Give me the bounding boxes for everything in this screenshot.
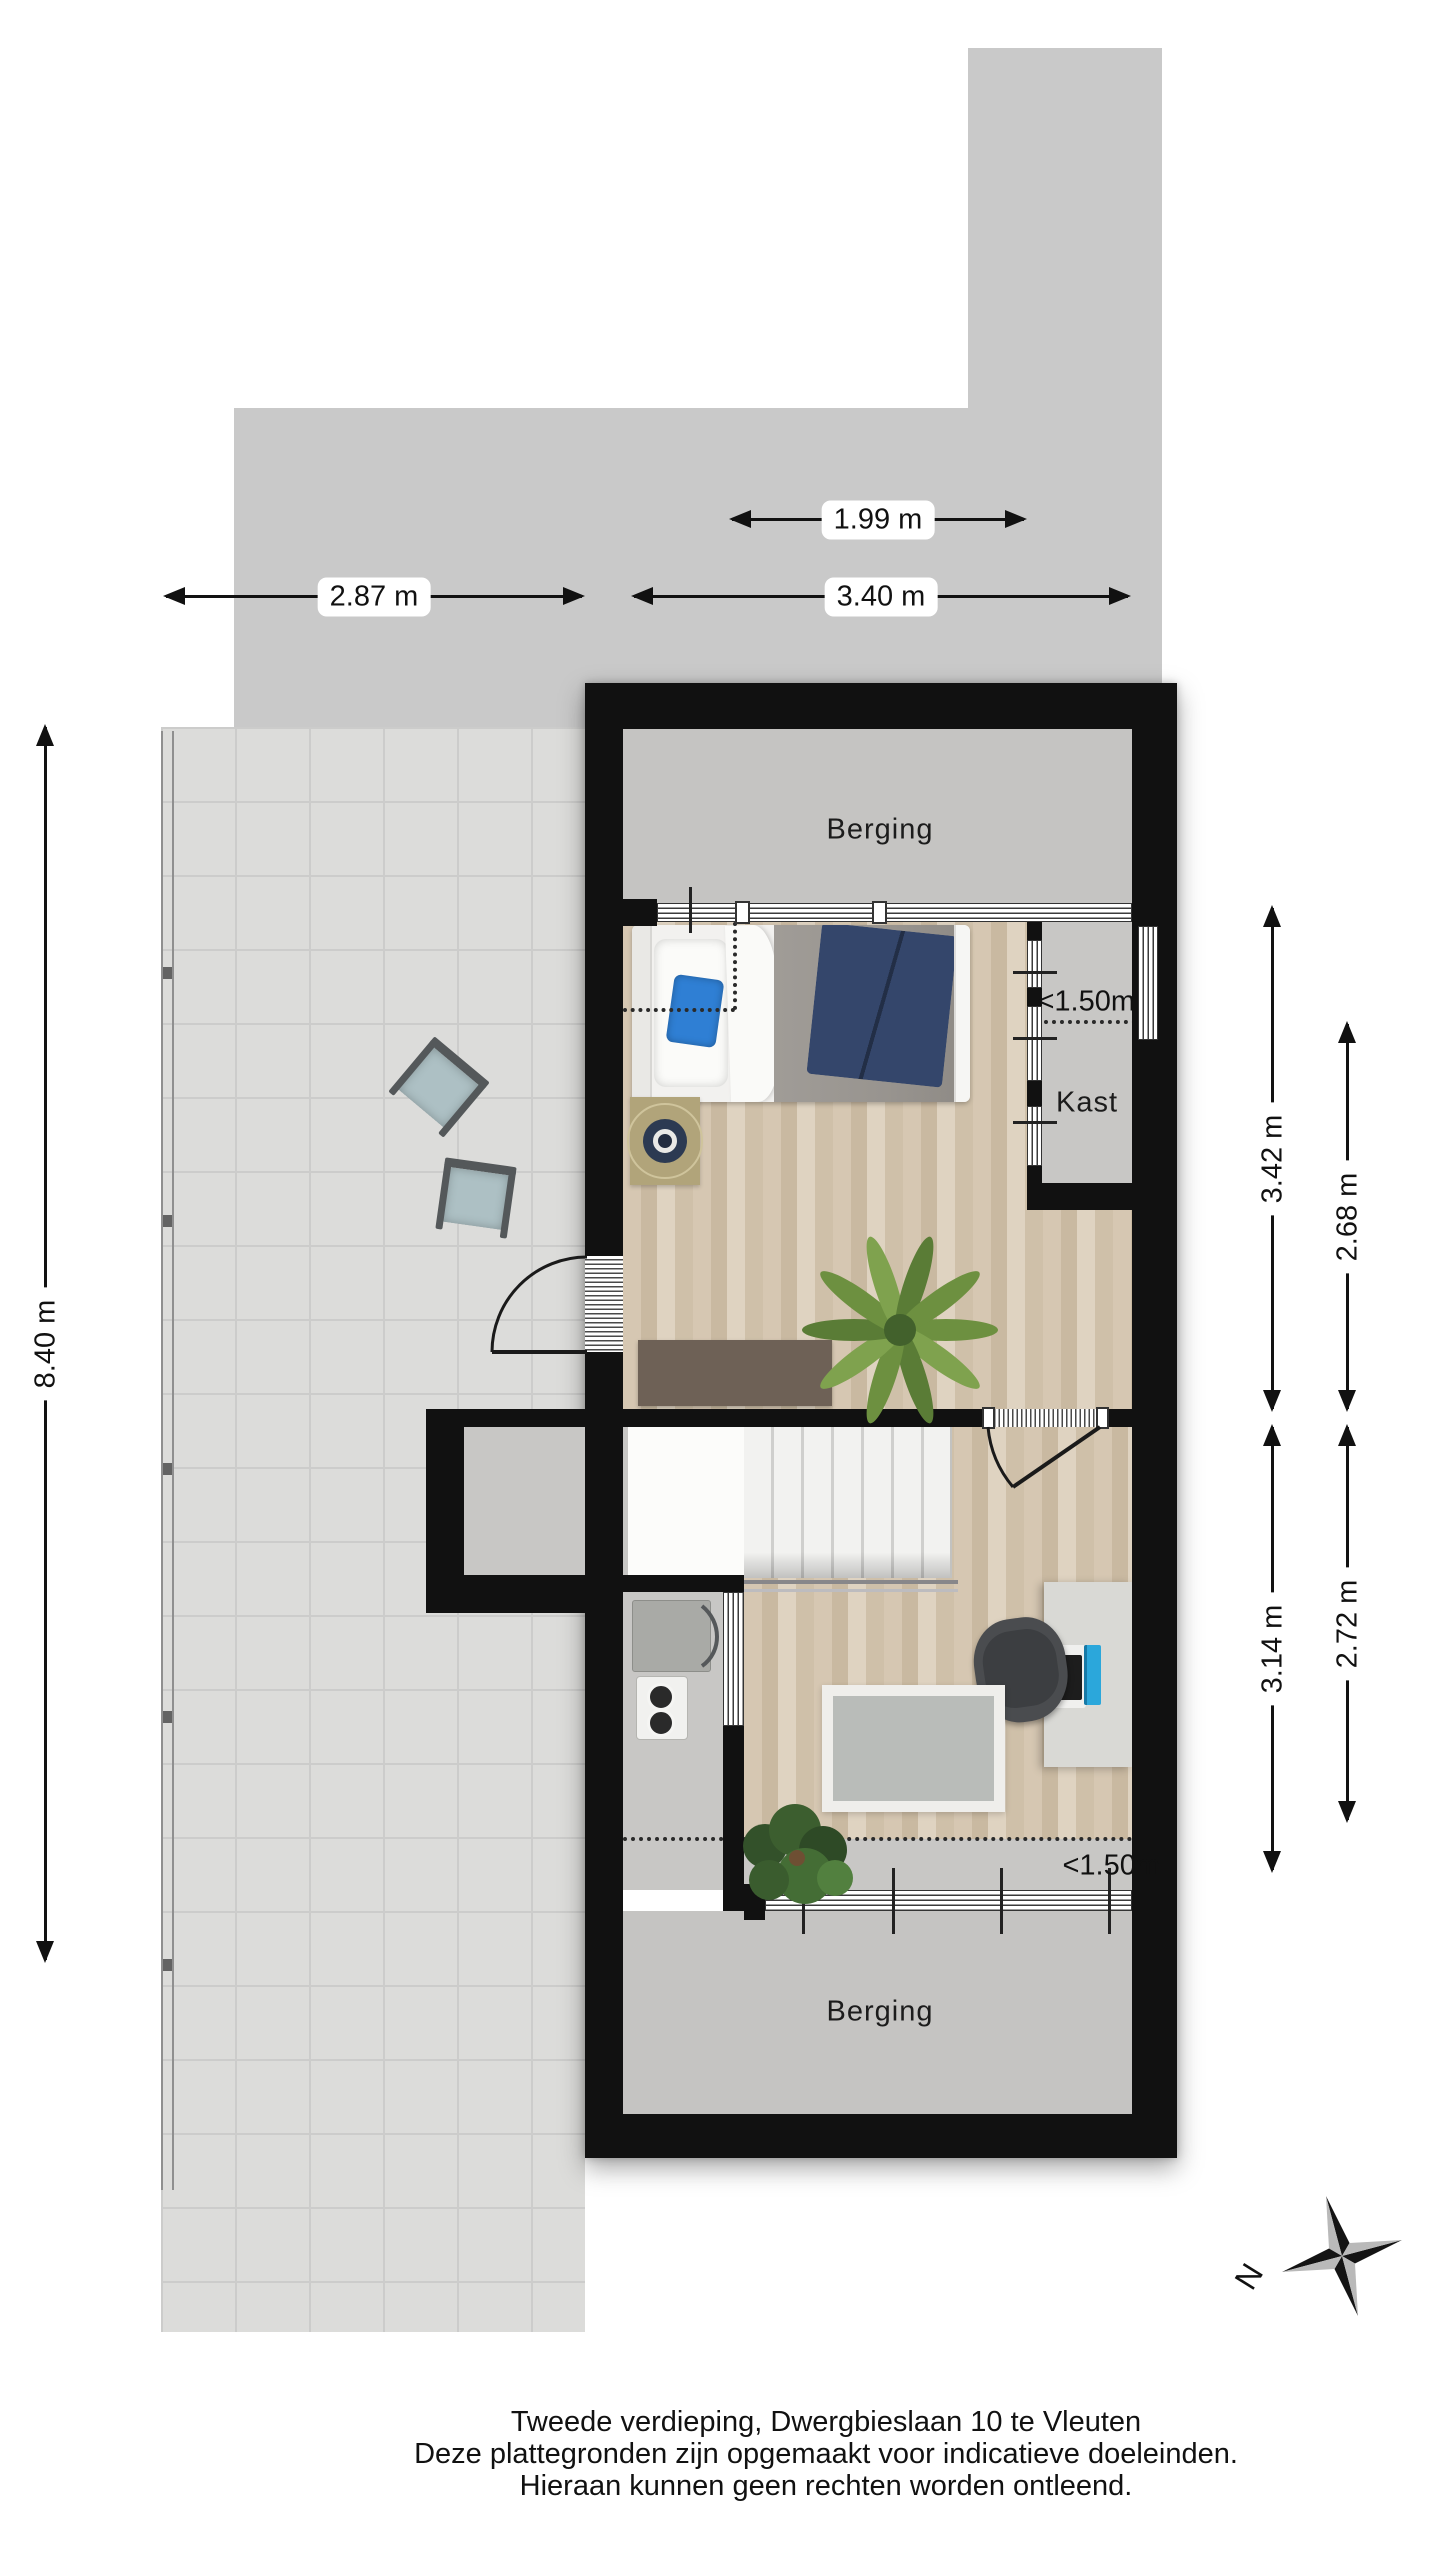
- dimension-value: 2.87 m: [318, 577, 431, 616]
- room-label-kast: Kast: [1056, 1087, 1118, 1120]
- footer-line-1: Tweede verdieping, Dwergbieslaan 10 te V…: [414, 2406, 1238, 2438]
- dimension-terrace-length: 8.40 m: [44, 727, 47, 1960]
- dimension-value: 1.99 m: [822, 500, 935, 539]
- headroom-label-top: <1.50m: [1037, 986, 1135, 1019]
- terrace-door-swing: [492, 1257, 587, 1352]
- dimension-study-depth-a: 3.14 m: [1271, 1427, 1274, 1870]
- dimension-bedroom-depth-a: 3.42 m: [1271, 908, 1274, 1409]
- dimension-bedroom-depth-b: 2.68 m: [1346, 1024, 1349, 1409]
- compass-north-label: N: [1227, 2257, 1270, 2296]
- washer-door-arc: [702, 1606, 717, 1666]
- dimension-value: 2.68 m: [1328, 1160, 1367, 1273]
- footer-line-2: Deze plattegronden zijn opgemaakt voor i…: [414, 2438, 1238, 2470]
- dimension-value: 3.40 m: [825, 577, 938, 616]
- dimension-top-inner-width: 1.99 m: [732, 518, 1024, 521]
- dimension-terrace-width: 2.87 m: [166, 595, 582, 598]
- dimension-value: 3.14 m: [1253, 1592, 1292, 1705]
- room-label-berging-bottom: Berging: [827, 1996, 934, 2029]
- footer-line-3: Hieraan kunnen geen rechten worden ontle…: [414, 2470, 1238, 2502]
- headroom-label-bottom: <1.50m: [1062, 1850, 1160, 1883]
- dimension-study-depth-b: 2.72 m: [1346, 1427, 1349, 1820]
- fig-plant: [743, 1804, 853, 1904]
- footer-disclaimer: Tweede verdieping, Dwergbieslaan 10 te V…: [414, 2406, 1238, 2502]
- dimension-value: 8.40 m: [26, 1287, 65, 1400]
- dimension-value: 2.72 m: [1328, 1567, 1367, 1680]
- overlay-graphics: N: [0, 0, 1440, 2560]
- dimension-main-width: 3.40 m: [634, 595, 1128, 598]
- floor-plan-canvas: N Berging Kast Berging <1.50m <1.50m 1.9…: [0, 0, 1440, 2560]
- dimension-value: 3.42 m: [1253, 1102, 1292, 1215]
- bedroom-door-swing: [988, 1427, 1100, 1487]
- room-label-berging-top: Berging: [827, 814, 934, 847]
- compass-rose: [1282, 2196, 1402, 2316]
- palm-plant: [802, 1233, 998, 1426]
